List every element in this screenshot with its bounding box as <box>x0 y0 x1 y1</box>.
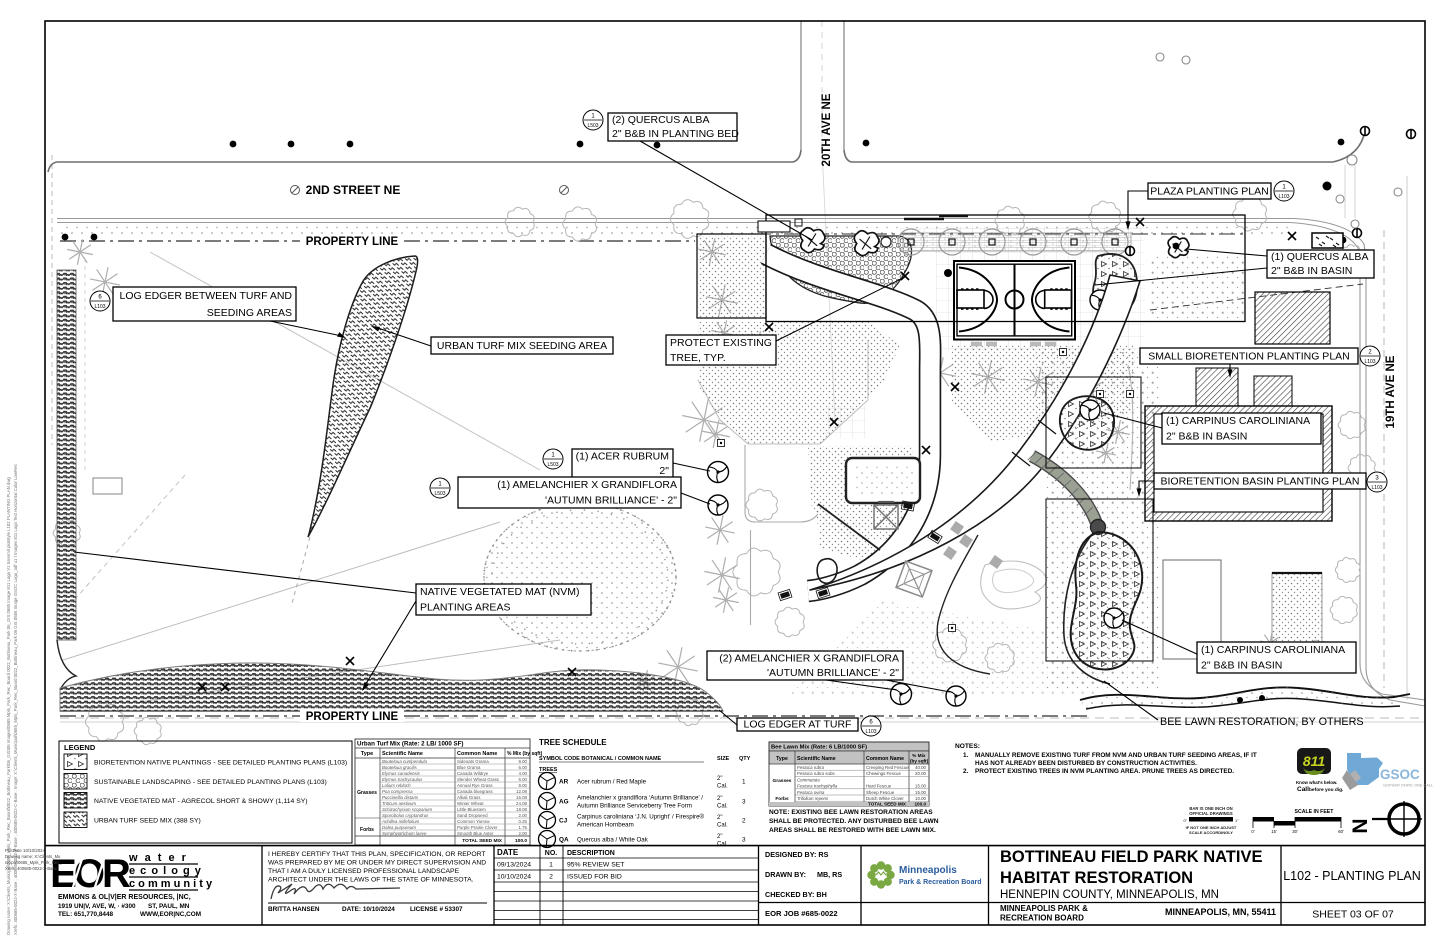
svg-text:(1) QUERCUS ALBA: (1) QUERCUS ALBA <box>1271 251 1368 263</box>
svg-text:NOTES:: NOTES: <box>955 743 980 750</box>
svg-text:PLANTING AREAS: PLANTING AREAS <box>420 602 510 614</box>
svg-text:MINNEAPOLIS, MN, 55411: MINNEAPOLIS, MN, 55411 <box>1165 907 1276 917</box>
svg-text:Commutata: Commutata <box>797 777 820 782</box>
svg-text:TEL: 651,770,8448: TEL: 651,770,8448 <box>58 911 114 918</box>
svg-text:Amelanchier x grandiflora ‘Aut: Amelanchier x grandiflora ‘Autumn Brilli… <box>577 795 703 802</box>
svg-text:SCALE ACCORDINGLY: SCALE ACCORDINGLY <box>1189 830 1233 835</box>
svg-text:ARCHITECT UNDER THE LAWS OF TH: ARCHITECT UNDER THE LAWS OF THE STATE OF… <box>268 877 474 884</box>
svg-text:Sideoats Grama: Sideoats Grama <box>457 759 489 764</box>
svg-text:SCALE IN FEET: SCALE IN FEET <box>1295 809 1335 815</box>
svg-text:Alkali Grass: Alkali Grass <box>457 795 481 800</box>
svg-text:MANUALLY REMOVE EXISTING TURF: MANUALLY REMOVE EXISTING TURF FROM NVM A… <box>975 752 1257 759</box>
svg-text:TREE, TYP.: TREE, TYP. <box>670 352 726 364</box>
svg-text:Winter Wheat: Winter Wheat <box>457 801 484 806</box>
svg-text:BIORETENTION NATIVE PLANTINGS: BIORETENTION NATIVE PLANTINGS - SEE DETA… <box>94 760 347 767</box>
svg-text:Bee Lawn Mix (Rate: 6 LB/1000: Bee Lawn Mix (Rate: 6 LB/1000 SF) <box>771 745 867 751</box>
svg-text:Smooth Blue Aster: Smooth Blue Aster <box>457 831 494 836</box>
svg-text:10.00: 10.00 <box>915 796 927 801</box>
svg-text:Sand Dropseed: Sand Dropseed <box>457 813 488 818</box>
svg-text:Common Name: Common Name <box>457 751 497 757</box>
svg-text:Sheep Fescue: Sheep Fescue <box>866 790 895 795</box>
svg-text:15': 15' <box>1271 829 1277 834</box>
svg-text:Creeping Red Fescue: Creeping Red Fescue <box>866 765 909 770</box>
svg-text:LICENSE # 53307: LICENSE # 53307 <box>410 906 463 913</box>
svg-text:(1) CARPINUS CAROLINIANA: (1) CARPINUS CAROLINIANA <box>1201 644 1345 656</box>
svg-text:Canada bluegrass: Canada bluegrass <box>457 789 493 794</box>
svg-text:SYMBOL CODE BOTANICAL / COMM: SYMBOL CODE BOTANICAL / COMMON NAME <box>539 756 662 762</box>
svg-text:Festuca rubra subs.: Festuca rubra subs. <box>797 771 836 776</box>
svg-text:PROTECT EXISTING TREES IN NVM: PROTECT EXISTING TREES IN NVM PLANTING A… <box>975 768 1234 775</box>
svg-text:L503: L503 <box>434 491 445 497</box>
svg-text:Cal.: Cal. <box>717 804 728 810</box>
svg-text:NATIVE VEGETATED MAT - AGRECOL: NATIVE VEGETATED MAT - AGRECOL SHORT & S… <box>94 798 308 805</box>
svg-text:Scientific Name: Scientific Name <box>382 751 423 757</box>
svg-text:2": 2" <box>659 465 669 477</box>
svg-text:L103: L103 <box>865 729 876 735</box>
svg-text:16.08: 16.08 <box>516 795 528 800</box>
svg-text:2: 2 <box>549 874 553 881</box>
svg-text:Annual Rye Grass: Annual Rye Grass <box>457 783 493 788</box>
svg-text:SEEDING AREAS: SEEDING AREAS <box>207 307 292 319</box>
svg-text:DESCRIPTION: DESCRIPTION <box>567 850 615 857</box>
svg-text:SMALL BIORETENTION PLANTING PL: SMALL BIORETENTION PLANTING PLAN <box>1148 351 1350 363</box>
svg-text:Autumn Brilliance Serviceberry: Autumn Brilliance Serviceberry Tree Form <box>577 803 692 810</box>
svg-text:2" B&B IN BASIN: 2" B&B IN BASIN <box>1166 431 1247 443</box>
svg-text:2.00: 2.00 <box>518 831 527 836</box>
svg-text:2: 2 <box>742 818 746 825</box>
svg-text:Canada Wildrye: Canada Wildrye <box>457 771 489 776</box>
svg-text:Hard Fescue: Hard Fescue <box>866 784 892 789</box>
svg-text:L103: L103 <box>1364 359 1375 365</box>
svg-text:Cal.: Cal. <box>717 842 728 848</box>
svg-text:Symphyotrichum laeve: Symphyotrichum laeve <box>382 831 427 836</box>
svg-text:WAS PREPARED BY ME OR UNDER MY: WAS PREPARED BY ME OR UNDER MY DIRECT SU… <box>268 860 486 867</box>
svg-text:Poa compressa: Poa compressa <box>382 789 413 794</box>
svg-text:(1) CARPINUS CAROLINIANA: (1) CARPINUS CAROLINIANA <box>1166 415 1310 427</box>
svg-text:HABITAT RESTORATION: HABITAT RESTORATION <box>1000 869 1193 887</box>
svg-text:Forbs: Forbs <box>360 827 374 833</box>
svg-text:Sporobolus cryptandrus: Sporobolus cryptandrus <box>382 813 429 818</box>
svg-text:Type: Type <box>361 751 373 757</box>
svg-text:'AUTUMN BRILLIANCE' - 2": 'AUTUMN BRILLIANCE' - 2" <box>767 667 899 679</box>
svg-text:BEE LAWN RESTORATION, BY OTHER: BEE LAWN RESTORATION, BY OTHERS <box>1160 716 1364 728</box>
svg-text:WWW,EOR|NC,COM: WWW,EOR|NC,COM <box>140 911 201 918</box>
svg-text:(1) AMELANCHIER X GRANDIFLORA: (1) AMELANCHIER X GRANDIFLORA <box>497 479 677 491</box>
svg-text:19TH AVE NE: 19TH AVE NE <box>1385 355 1397 428</box>
svg-text:L102 - PLANTING PLAN: L102 - PLANTING PLAN <box>1283 869 1421 883</box>
svg-text:2": 2" <box>717 815 722 821</box>
svg-text:Scientific Name: Scientific Name <box>797 756 836 762</box>
svg-text:PROPERTY LINE: PROPERTY LINE <box>306 236 399 248</box>
svg-text:CHECKED BY: BH: CHECKED BY: BH <box>765 890 827 899</box>
svg-text:c o m m u n i t y: c o m m u n i t y <box>129 878 213 890</box>
svg-text:DESIGNED BY: RS: DESIGNED BY: RS <box>765 850 829 859</box>
svg-text:2": 2" <box>717 834 722 840</box>
svg-text:NATIVE VEGETATED MAT (NVM): NATIVE VEGETATED MAT (NVM) <box>420 586 579 598</box>
svg-text:12.08: 12.08 <box>516 789 528 794</box>
svg-text:EOR: EOR <box>50 852 131 896</box>
svg-text:6.00: 6.00 <box>518 777 527 782</box>
svg-text:nicipal\0685_Mpls_Park_Rec_: nicipal\0685_Mpls_Park_Rec_ <box>5 860 62 865</box>
svg-text:(2) AMELANCHIER X GRANDIFLORA: (2) AMELANCHIER X GRANDIFLORA <box>719 652 899 664</box>
svg-text:LOG EDGER AT TURF: LOG EDGER AT TURF <box>744 718 852 730</box>
svg-text:Trifolium repens: Trifolium repens <box>797 796 829 801</box>
svg-text:2" B&B IN BASIN: 2" B&B IN BASIN <box>1201 660 1282 672</box>
svg-text:TOTAL SEED MIX: TOTAL SEED MIX <box>462 838 503 844</box>
svg-text:QA: QA <box>559 837 569 844</box>
svg-text:Quercus alba / White Oak: Quercus alba / White Oak <box>577 837 649 844</box>
svg-text:20.00: 20.00 <box>915 771 927 776</box>
svg-text:BRITTA HANSEN: BRITTA HANSEN <box>268 906 320 913</box>
svg-text:2" B&B IN BASIN: 2" B&B IN BASIN <box>1271 265 1352 277</box>
svg-text:Grasses: Grasses <box>357 790 377 796</box>
svg-text:Puccinellia distans: Puccinellia distans <box>382 795 419 800</box>
svg-text:Grasses: Grasses <box>773 778 792 784</box>
svg-text:Schizachyrium scoparium: Schizachyrium scoparium <box>382 807 432 812</box>
svg-text:1919 UN|V, AVE, W, · #300: 1919 UN|V, AVE, W, · #300 <box>58 903 136 910</box>
svg-text:DRAWN BY:: DRAWN BY: <box>765 870 806 879</box>
svg-text:9.00: 9.00 <box>518 783 527 788</box>
svg-text:2.: 2. <box>963 768 969 775</box>
svg-text:before you dig.: before you dig. <box>1309 787 1343 793</box>
svg-text:Carpinus caroliniana ‘J.N. Upr: Carpinus caroliniana ‘J.N. Upright’ / Fi… <box>577 814 705 821</box>
svg-text:EOR JOB #685-0022: EOR JOB #685-0022 <box>765 909 838 918</box>
svg-text:EMMONS & OL|V|ER RESOURCES, |N: EMMONS & OL|V|ER RESOURCES, |NC, <box>58 894 191 901</box>
svg-text:1: 1 <box>742 779 746 786</box>
svg-text:100.0: 100.0 <box>915 802 927 807</box>
svg-text:TREE SCHEDULE: TREE SCHEDULE <box>539 738 607 747</box>
svg-text:2": 2" <box>717 776 722 782</box>
svg-text:CJ: CJ <box>559 818 568 825</box>
svg-text:AR: AR <box>559 779 569 786</box>
svg-text:MINNEAPOLIS PARK &: MINNEAPOLIS PARK & <box>1000 904 1088 913</box>
svg-text:Call: Call <box>1297 786 1309 793</box>
svg-text:Type: Type <box>776 756 788 762</box>
svg-text:Common Yarrow: Common Yarrow <box>457 819 490 824</box>
svg-text:Drawing name: X:\Clients_Mu: Drawing name: X:\Clients_Mu <box>5 854 61 859</box>
svg-text:TOTAL SEED MIX: TOTAL SEED MIX <box>868 802 907 807</box>
svg-text:811: 811 <box>1303 753 1326 769</box>
svg-text:Chewings Fescue: Chewings Fescue <box>866 771 901 776</box>
svg-text:URBAN TURF SEED MIX (388 SY): URBAN TURF SEED MIX (388 SY) <box>94 818 201 825</box>
svg-text:Festuca trachyphylla: Festuca trachyphylla <box>797 784 838 789</box>
svg-text:Purple Prairie Clover: Purple Prairie Clover <box>457 825 498 830</box>
svg-text:OFFICIAL DRAWINGS: OFFICIAL DRAWINGS <box>1189 811 1233 816</box>
svg-text:PROTECT EXISTING: PROTECT EXISTING <box>670 337 772 349</box>
svg-text:18.08: 18.08 <box>516 807 528 812</box>
svg-text:2" B&B IN PLANTING BED: 2" B&B IN PLANTING BED <box>612 128 739 140</box>
svg-text:95% REVIEW SET: 95% REVIEW SET <box>567 862 624 869</box>
svg-text:0': 0' <box>1251 829 1254 834</box>
svg-text:SHEET 03 OF 07: SHEET 03 OF 07 <box>1312 909 1394 921</box>
svg-text:SIZE: SIZE <box>717 756 730 762</box>
svg-text:2.00: 2.00 <box>518 813 527 818</box>
svg-text:'AUTUMN BRILLIANCE' - 2": 'AUTUMN BRILLIANCE' - 2" <box>545 495 677 507</box>
svg-text:BIORETENTION BASIN PLANTING PL: BIORETENTION BASIN PLANTING PLAN <box>1161 476 1360 488</box>
svg-text:Cal.: Cal. <box>717 784 728 790</box>
svg-text:24.08: 24.08 <box>516 801 528 806</box>
svg-text:NOTE: EXISTING BEE LAWN RESTOR: NOTE: EXISTING BEE LAWN RESTORATION AREA… <box>769 809 933 816</box>
svg-text:Lolium rebloch: Lolium rebloch <box>382 783 411 788</box>
svg-text:L103: L103 <box>94 304 105 310</box>
svg-text:10/10/2024: 10/10/2024 <box>497 874 531 881</box>
svg-text:L503: L503 <box>547 462 558 468</box>
svg-text:w a t e r: w a t e r <box>128 852 188 864</box>
svg-text:100.0: 100.0 <box>515 838 527 844</box>
svg-text:Elymus canadensis: Elymus canadensis <box>382 771 421 776</box>
svg-text:Xrefs: 400685-0022-X-Base: Xrefs: 400685-0022-X-Base <box>5 866 58 871</box>
svg-text:Little Bluestem: Little Bluestem <box>457 807 486 812</box>
svg-text:0.25: 0.25 <box>518 819 527 824</box>
svg-text:60': 60' <box>1338 829 1344 834</box>
svg-text:2": 2" <box>717 796 722 802</box>
svg-text:2ND STREET NE: 2ND STREET NE <box>306 183 401 197</box>
svg-text:American Hornbeam: American Hornbeam <box>577 822 634 829</box>
svg-text:6.00: 6.00 <box>518 765 527 770</box>
svg-text:DATE: DATE <box>497 848 519 857</box>
svg-text:SUSTAINABLE LANDSCAPING - SEE: SUSTAINABLE LANDSCAPING - SEE DETAILED P… <box>94 779 327 786</box>
svg-text:ST, PAUL, MN: ST, PAUL, MN <box>148 903 190 910</box>
svg-text:9.00: 9.00 <box>518 759 527 764</box>
svg-text:3: 3 <box>742 837 746 844</box>
svg-text:4.00: 4.00 <box>518 771 527 776</box>
svg-text:(1) ACER RUBRUM: (1) ACER RUBRUM <box>576 450 669 462</box>
svg-text:THAT I AM A DULY LICENSED PROF: THAT I AM A DULY LICENSED PROFESSIONAL L… <box>268 868 460 875</box>
svg-text:GOPHER STATE ONE CALL: GOPHER STATE ONE CALL <box>1383 783 1434 788</box>
svg-text:N: N <box>1349 818 1372 833</box>
svg-text:15.00: 15.00 <box>915 790 927 795</box>
svg-text:DATE: 10/10/2024: DATE: 10/10/2024 <box>342 906 395 913</box>
svg-text:(by sqft): (by sqft) <box>910 759 929 764</box>
svg-text:1.: 1. <box>963 752 969 759</box>
svg-text:GSOC: GSOC <box>1380 767 1420 782</box>
svg-text:Acer rubrum / Red Maple: Acer rubrum / Red Maple <box>577 779 647 786</box>
svg-text:e c o l o g y: e c o l o g y <box>129 865 202 877</box>
svg-text:L503: L503 <box>587 123 598 129</box>
svg-text:Bouteloua curtipendula: Bouteloua curtipendula <box>382 759 427 764</box>
svg-text:Blue Grama: Blue Grama <box>457 765 481 770</box>
svg-text:Cal.: Cal. <box>717 823 728 829</box>
svg-text:Triticum aestivum: Triticum aestivum <box>382 801 416 806</box>
svg-text:ISSUED FOR BID: ISSUED FOR BID <box>567 874 622 881</box>
svg-text:NO.: NO. <box>545 850 558 857</box>
svg-text:Common Name: Common Name <box>866 756 904 762</box>
svg-text:AG: AG <box>559 799 569 806</box>
svg-text:09/13/2024: 09/13/2024 <box>497 862 531 869</box>
svg-text:Achillea millefolium: Achillea millefolium <box>381 819 420 824</box>
svg-text:BOTTINEAU FIELD PARK NATIVE: BOTTINEAU FIELD PARK NATIVE <box>1000 848 1262 866</box>
svg-text:AREAS SHALL BE RESTORED WITH B: AREAS SHALL BE RESTORED WITH BEE LAWN MI… <box>769 827 936 834</box>
svg-text:1: 1 <box>549 862 553 869</box>
svg-text:RECREATION BOARD: RECREATION BOARD <box>1000 914 1084 923</box>
svg-text:LOG EDGER BETWEEN TURF AND: LOG EDGER BETWEEN TURF AND <box>120 290 293 302</box>
svg-text:I HEREBY CERTIFY THAT THIS PLA: I HEREBY CERTIFY THAT THIS PLAN, SPECIFI… <box>268 851 486 858</box>
svg-text:Urban Turf Mix (Rate: 2 LB/ 10: Urban Turf Mix (Rate: 2 LB/ 1000 SF) <box>357 741 463 748</box>
svg-text:Slender Wheat Grass: Slender Wheat Grass <box>457 777 500 782</box>
svg-text:HENNEPIN COUNTY, MINNEAPOLIS,: HENNEPIN COUNTY, MINNEAPOLIS, MN <box>1000 889 1219 901</box>
svg-text:SHALL BE PROTECTED. ANY DISTUR: SHALL BE PROTECTED. ANY DISTURBED BEE LA… <box>769 818 939 825</box>
svg-text:L103: L103 <box>1278 194 1289 200</box>
svg-text:MB, RS: MB, RS <box>817 870 842 879</box>
svg-text:PlotDate 10/10/2024: PlotDate 10/10/2024 <box>5 848 46 853</box>
svg-text:Dutch White Clover: Dutch White Clover <box>866 796 904 801</box>
svg-text:Dalea purpureum: Dalea purpureum <box>382 825 416 830</box>
svg-text:20TH AVE NE: 20TH AVE NE <box>821 93 833 166</box>
svg-text:Festuca ovina: Festuca ovina <box>797 790 825 795</box>
svg-text:HAS NOT ALREADY BEEN DISTURBED: HAS NOT ALREADY BEEN DISTURBED BY CONSTR… <box>975 760 1197 767</box>
svg-text:15.00: 15.00 <box>915 784 927 789</box>
svg-text:% Mix (by sqft): % Mix (by sqft) <box>507 751 543 757</box>
svg-text:3: 3 <box>742 799 746 806</box>
svg-text:1.75: 1.75 <box>518 825 527 830</box>
svg-text:LEGEND: LEGEND <box>64 743 96 752</box>
svg-text:30': 30' <box>1292 829 1298 834</box>
svg-text:PLAZA PLANTING PLAN: PLAZA PLANTING PLAN <box>1150 186 1268 198</box>
svg-text:PROPERTY LINE: PROPERTY LINE <box>306 711 399 723</box>
svg-text:Park & Recreation Board: Park & Recreation Board <box>899 879 981 886</box>
svg-text:40.00: 40.00 <box>915 765 927 770</box>
svg-text:Bouteloua gracilis: Bouteloua gracilis <box>382 765 417 770</box>
svg-text:Festuca rubra: Festuca rubra <box>797 765 825 770</box>
svg-text:QTY: QTY <box>739 756 751 762</box>
svg-text:L103: L103 <box>1371 485 1382 491</box>
svg-text:Forbs: Forbs <box>775 796 789 802</box>
svg-text:Elymus trachycaulus: Elymus trachycaulus <box>382 777 423 782</box>
svg-text:Minneapolis: Minneapolis <box>899 865 957 876</box>
svg-text:URBAN TURF MIX SEEDING AREA: URBAN TURF MIX SEEDING AREA <box>437 340 607 352</box>
svg-text:(2) QUERCUS ALBA: (2) QUERCUS ALBA <box>612 114 709 126</box>
svg-text:Know what’s below.: Know what’s below. <box>1296 780 1337 785</box>
